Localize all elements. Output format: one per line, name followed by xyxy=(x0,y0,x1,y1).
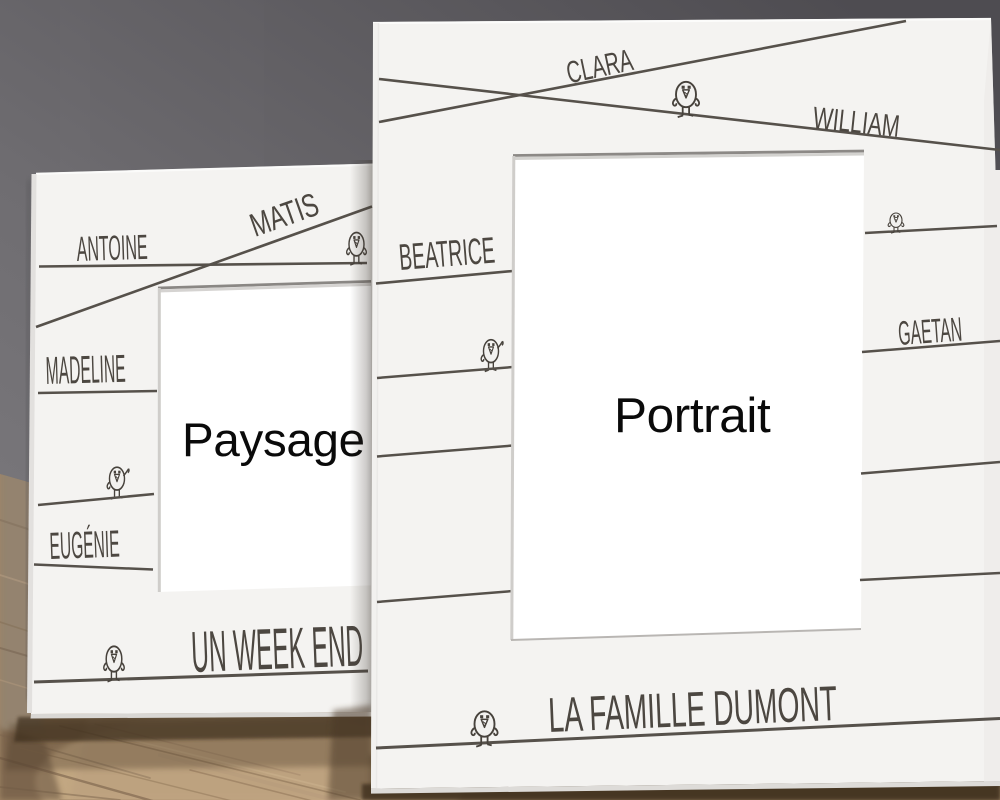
svg-text:EUGÉNIE: EUGÉNIE xyxy=(49,523,120,568)
svg-text:BEATRICE: BEATRICE xyxy=(397,230,496,278)
svg-text:Paysage: Paysage xyxy=(182,414,365,467)
svg-text:Portrait: Portrait xyxy=(614,388,771,443)
svg-text:MADELINE: MADELINE xyxy=(45,348,126,393)
svg-text:ANTOINE: ANTOINE xyxy=(76,228,148,269)
